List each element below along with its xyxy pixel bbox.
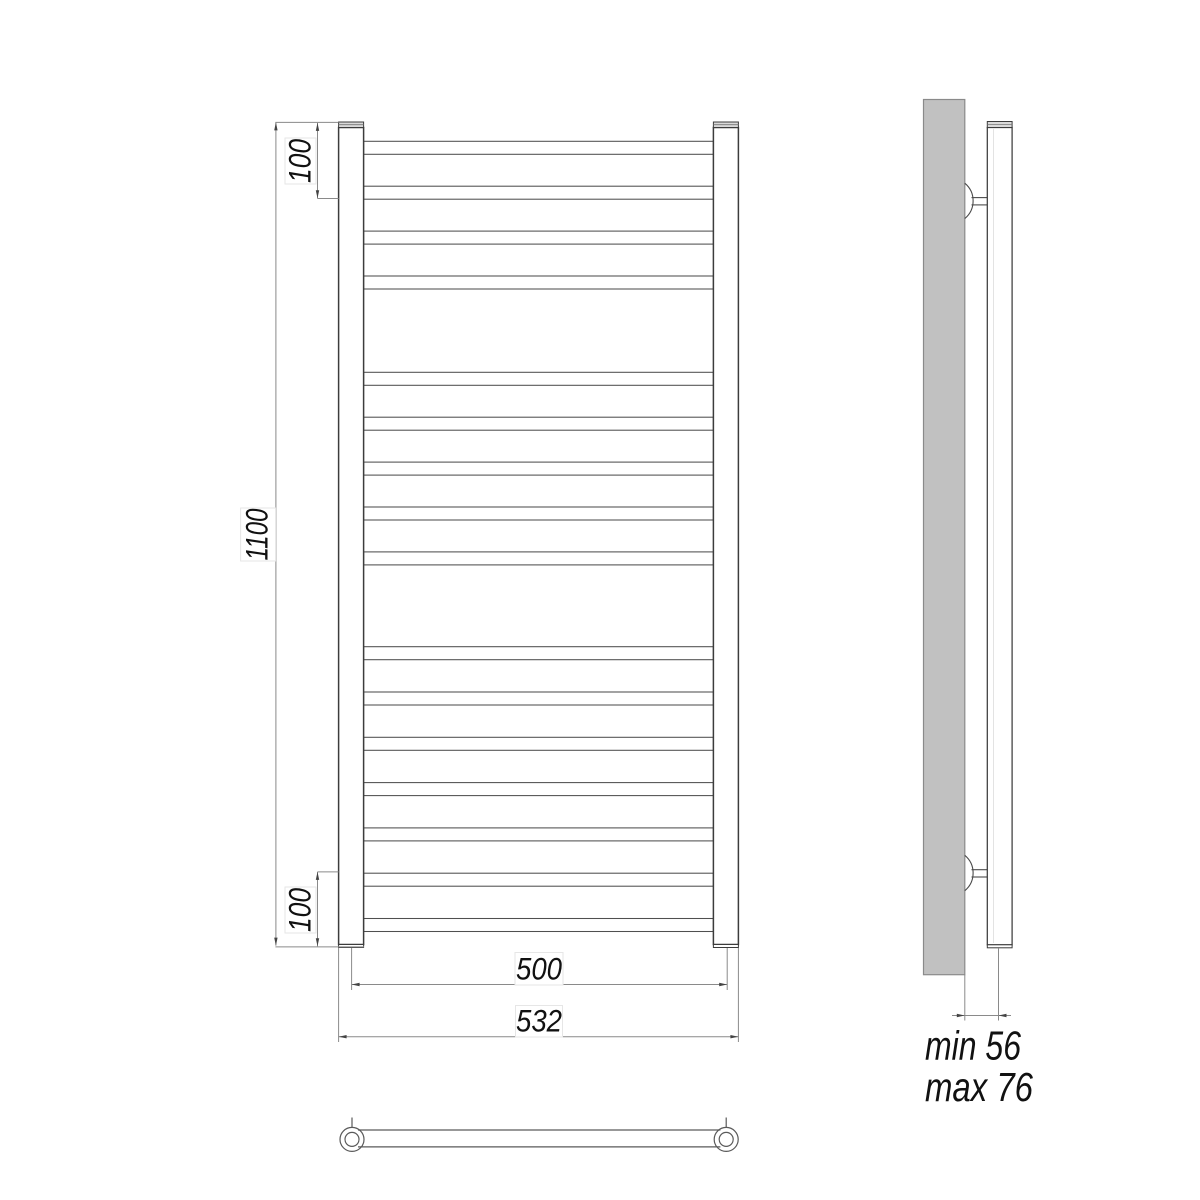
svg-text:532: 532 (516, 1003, 562, 1039)
svg-text:100: 100 (282, 139, 318, 183)
svg-text:1100: 1100 (239, 508, 275, 560)
svg-text:500: 500 (516, 951, 562, 987)
svg-text:100: 100 (282, 888, 318, 932)
svg-text:max 76: max 76 (925, 1064, 1033, 1110)
svg-text:min 56: min 56 (925, 1023, 1021, 1069)
